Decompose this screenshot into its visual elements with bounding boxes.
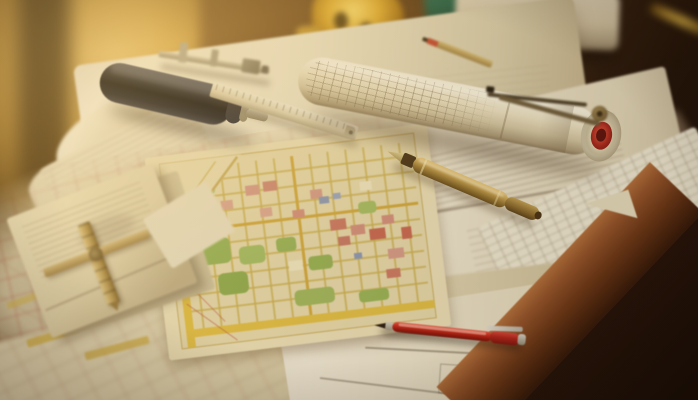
divider-tip [486, 86, 495, 93]
yellow-pencil [649, 2, 698, 36]
desk-photograph [0, 0, 698, 400]
red-pen-clip [487, 326, 523, 332]
caliper-screw [261, 65, 269, 74]
red-pen-end-ring [517, 334, 526, 346]
caliper-head [241, 58, 261, 75]
